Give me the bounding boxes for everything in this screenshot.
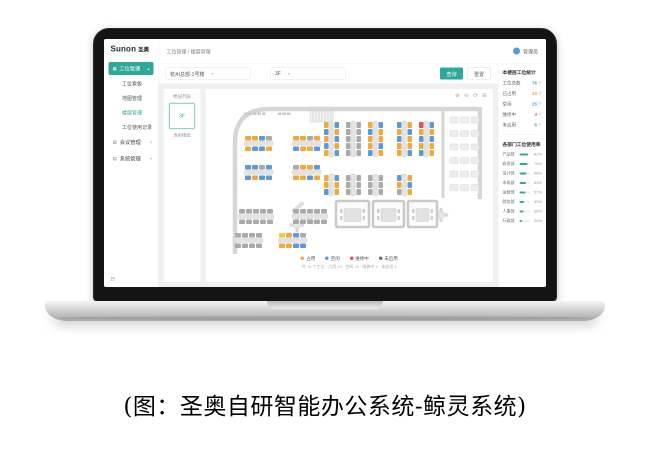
desk (292, 141, 321, 146)
seat[interactable] (300, 136, 306, 141)
seat[interactable] (368, 136, 373, 142)
stat-value: 76 (532, 81, 537, 86)
seat[interactable] (419, 143, 424, 149)
locker (460, 185, 468, 191)
building-select-value: 杭州总部·1号楼 (170, 70, 204, 78)
zoom-in-icon[interactable]: ⊕ (455, 92, 460, 99)
seat[interactable] (324, 129, 329, 135)
desk (373, 121, 378, 157)
seat[interactable] (307, 136, 313, 141)
main-area: 工位管理 / 楼层管理 管理员 杭州总部·1号楼 (159, 39, 547, 287)
usage-row: 人事部38% (503, 209, 543, 215)
floor-summary-note: 共 76 个工位 · 占用 43 · 空闲 25 · 维修中 3 · 未启用 5 (302, 264, 397, 270)
seat[interactable] (378, 129, 383, 135)
seat[interactable] (407, 129, 412, 135)
seat[interactable] (286, 233, 292, 238)
locker (450, 185, 458, 191)
usage-pct: 26% (532, 219, 542, 224)
seat[interactable] (429, 136, 434, 142)
stat-row: 工位总数76个 (503, 80, 543, 87)
desk (373, 174, 378, 196)
floor-select[interactable]: 3F ▾ (271, 68, 346, 80)
seat[interactable] (334, 175, 339, 181)
seat[interactable] (321, 220, 327, 225)
menu-icon: ▤ (113, 156, 117, 162)
seat[interactable] (279, 233, 285, 238)
seat[interactable] (378, 182, 383, 188)
usage-bar-fill (520, 201, 525, 203)
usage-bar-fill (520, 182, 527, 184)
seat[interactable] (266, 147, 272, 152)
stat-label: 维修中 (503, 111, 517, 118)
topbar: 工位管理 / 楼层管理 管理员 (159, 39, 547, 64)
seat[interactable] (300, 165, 306, 170)
seat[interactable] (252, 165, 258, 170)
seat[interactable] (346, 122, 351, 128)
usage-label: 人事部 (503, 209, 518, 215)
laptop-notch (267, 301, 383, 309)
usage-label: 产品部 (503, 152, 518, 158)
seat[interactable] (235, 233, 241, 238)
locker (450, 117, 458, 123)
seat[interactable] (407, 175, 412, 181)
desk (424, 121, 429, 157)
legend-item: 未启用 (379, 255, 398, 262)
stat-label: 未启用 (503, 122, 517, 129)
usage-rows: 产品部82%研发部76%设计部68%市场部63%运营部57%财务部45%人事部3… (503, 152, 543, 224)
username: 管理员 (523, 47, 538, 55)
seat[interactable] (252, 136, 258, 141)
seat[interactable] (368, 143, 373, 149)
seat[interactable] (246, 220, 252, 225)
usage-bar (520, 220, 531, 222)
seat[interactable] (300, 244, 306, 249)
floorplan-canvas: ⊕⊖⟳⊞ 占用空闲维修中未启用 共 76 个工位 · 占用 43 · 空闲 25… (206, 89, 494, 282)
seat[interactable] (259, 147, 265, 152)
desk (292, 214, 328, 219)
seat[interactable] (407, 136, 412, 142)
usage-bar (520, 191, 531, 193)
seat[interactable] (259, 176, 265, 181)
seat[interactable] (307, 165, 313, 170)
usage-pct: 76% (532, 162, 542, 167)
seat[interactable] (356, 182, 361, 188)
seat[interactable] (368, 189, 373, 195)
legend-label: 占用 (306, 255, 315, 262)
usage-bar-fill (520, 220, 523, 222)
seat[interactable] (378, 136, 383, 142)
stairs (310, 111, 333, 122)
seat[interactable] (334, 189, 339, 195)
legend-dot (325, 257, 329, 261)
sidebar-subitem[interactable]: 工位看板 (104, 76, 158, 91)
locker (471, 185, 479, 191)
locker (460, 144, 468, 150)
bottom-row: 杭州总部·1号楼 ▾ 3F ▾ 查询 重置 (159, 64, 547, 288)
seat[interactable] (242, 233, 248, 238)
desk (238, 214, 274, 219)
stat-unit: 个 (538, 81, 542, 87)
seat[interactable] (293, 233, 299, 238)
refresh-icon[interactable]: ⟳ (473, 92, 478, 99)
usage-label: 行政部 (503, 218, 518, 224)
content-row: 楼层列表 3F 当前楼层 ⊕⊖⟳⊞ 占用空闲维修中未启用 (159, 84, 499, 287)
usage-row: 研发部76% (503, 161, 543, 167)
seat[interactable] (397, 143, 402, 149)
stat-row: 未启用5个 (503, 122, 543, 129)
seat[interactable] (429, 143, 434, 149)
seat[interactable] (307, 147, 313, 152)
stat-unit: 个 (538, 91, 542, 97)
sidebar-item-label: 系统管理 (120, 155, 141, 163)
seat[interactable] (346, 143, 351, 149)
stat-value: 5 (534, 123, 537, 128)
menu-icon: ▤ (113, 140, 117, 146)
seat[interactable] (266, 176, 272, 181)
seat[interactable] (356, 122, 361, 128)
seat[interactable] (419, 122, 424, 128)
seat[interactable] (378, 175, 383, 181)
seat[interactable] (314, 147, 320, 152)
seat[interactable] (324, 150, 329, 156)
seat[interactable] (324, 189, 329, 195)
stat-unit: 个 (538, 112, 542, 118)
usage-row: 市场部63% (503, 180, 543, 186)
locker (450, 158, 458, 164)
chevron-down-icon: ▾ (150, 157, 152, 162)
seat[interactable] (260, 209, 266, 214)
usage-pct: 63% (532, 181, 542, 186)
seat[interactable] (300, 176, 306, 181)
seat[interactable] (307, 176, 313, 181)
seat[interactable] (324, 143, 329, 149)
desk (292, 170, 321, 175)
seat[interactable] (260, 220, 266, 225)
floor-thumbnail-caption: 当前楼层 (173, 132, 190, 138)
stat-row: 已占用43个 (503, 90, 543, 97)
locker (471, 158, 479, 164)
seat[interactable] (407, 122, 412, 128)
divider (503, 134, 543, 135)
reset-button[interactable]: 重置 (467, 68, 491, 80)
breadcrumb[interactable]: 工位管理 / 楼层管理 (167, 47, 211, 55)
stat-value: 3 (534, 112, 537, 117)
seat[interactable] (249, 244, 255, 249)
seat[interactable] (256, 233, 262, 238)
seat[interactable] (307, 220, 313, 225)
sidebar-subitem[interactable]: 地图管理 (104, 91, 158, 106)
seat[interactable] (368, 175, 373, 181)
seat[interactable] (334, 182, 339, 188)
seat[interactable] (266, 165, 272, 170)
sidebar-item-parent[interactable]: ▤会议管理▾ (104, 134, 158, 151)
usage-bar-fill (520, 163, 528, 165)
seat[interactable] (314, 165, 320, 170)
seat[interactable] (293, 209, 299, 214)
seat[interactable] (407, 143, 412, 149)
seat[interactable] (324, 122, 329, 128)
usage-bar-fill (520, 153, 529, 155)
sidebar-collapse-button[interactable]: ⊟ (111, 276, 116, 283)
seat[interactable] (356, 143, 361, 149)
locker (450, 131, 458, 137)
chevron-down-icon: ▾ (288, 71, 290, 76)
seat[interactable] (253, 209, 259, 214)
seat[interactable] (378, 150, 383, 156)
legend-item: 占用 (301, 255, 316, 262)
seat[interactable] (397, 175, 402, 181)
canvas-toolbar: ⊕⊖⟳⊞ (455, 92, 487, 99)
laptop-screen: Sunon 圣奥 ▦ 工位管理 ▴ 工位看板地图管理楼层管理工位使用记录 ▤会议… (104, 39, 546, 287)
seat[interactable] (346, 150, 351, 156)
locker (450, 144, 458, 150)
stat-unit: 个 (538, 102, 542, 108)
filter-actions: 查询 重置 (440, 68, 491, 80)
sidebar: Sunon 圣奥 ▦ 工位管理 ▴ 工位看板地图管理楼层管理工位使用记录 ▤会议… (104, 39, 159, 287)
seat[interactable] (300, 233, 306, 238)
seat[interactable] (307, 209, 313, 214)
sidebar-item-label: 工位管理 (119, 65, 140, 73)
seat[interactable] (356, 129, 361, 135)
desk (329, 174, 334, 196)
locker (460, 158, 468, 164)
brand-text: Sunon (111, 45, 137, 54)
seat[interactable] (267, 220, 273, 225)
seat[interactable] (300, 209, 306, 214)
usage-bar (520, 210, 531, 212)
seat[interactable] (245, 176, 251, 181)
seat[interactable] (245, 136, 251, 141)
locker (460, 171, 468, 177)
desk (278, 238, 307, 243)
left-column: 杭州总部·1号楼 ▾ 3F ▾ 查询 重置 (159, 64, 499, 288)
usage-bar (520, 153, 531, 155)
seat[interactable] (346, 129, 351, 135)
seat[interactable] (346, 182, 351, 188)
seat[interactable] (256, 244, 262, 249)
seat[interactable] (397, 129, 402, 135)
legend-item: 空闲 (325, 255, 340, 262)
seat[interactable] (252, 147, 258, 152)
seat[interactable] (407, 189, 412, 195)
seat[interactable] (356, 175, 361, 181)
seat[interactable] (368, 129, 373, 135)
seat[interactable] (378, 189, 383, 195)
seat[interactable] (245, 147, 251, 152)
seat-legend: 占用空闲维修中未启用 (301, 255, 398, 262)
usage-pct: 82% (532, 152, 542, 157)
seat[interactable] (314, 136, 320, 141)
sidebar-subitem[interactable]: 工位使用记录 (104, 120, 158, 135)
fullscreen-icon[interactable]: ⊞ (482, 92, 487, 99)
seat[interactable] (334, 150, 339, 156)
seat[interactable] (397, 122, 402, 128)
seat[interactable] (334, 129, 339, 135)
seat[interactable] (324, 182, 329, 188)
desk (244, 141, 273, 146)
seat[interactable] (314, 209, 320, 214)
seat[interactable] (235, 244, 241, 249)
locker (471, 171, 479, 177)
seat[interactable] (293, 244, 299, 249)
seat[interactable] (249, 233, 255, 238)
legend-label: 维修中 (355, 255, 369, 262)
sidebar-parents: ▤会议管理▾▤系统管理▾ (104, 134, 158, 167)
sidebar-item-label: 会议管理 (120, 139, 141, 147)
seat[interactable] (324, 136, 329, 142)
seat[interactable] (346, 175, 351, 181)
seat[interactable] (419, 136, 424, 142)
seat[interactable] (239, 220, 245, 225)
seat[interactable] (266, 136, 272, 141)
usage-title: 各部门工位使用率 (503, 141, 543, 148)
chevron-down-icon: ▾ (150, 140, 152, 145)
seat[interactable] (397, 136, 402, 142)
seat[interactable] (397, 150, 402, 156)
desk (234, 238, 263, 243)
app-logo: Sunon 圣奥 (104, 39, 158, 60)
seat[interactable] (242, 244, 248, 249)
usage-bar (520, 201, 531, 203)
stat-value: 43 (532, 91, 537, 96)
seat[interactable] (397, 189, 402, 195)
seat[interactable] (378, 122, 383, 128)
legend-label: 空闲 (331, 255, 340, 262)
locker (450, 171, 458, 177)
seat[interactable] (429, 129, 434, 135)
seat[interactable] (293, 147, 299, 152)
user-menu[interactable]: 管理员 (513, 47, 538, 55)
desk (244, 170, 273, 175)
seat[interactable] (334, 143, 339, 149)
seat[interactable] (429, 150, 434, 156)
seat[interactable] (300, 220, 306, 225)
laptop-base (45, 301, 605, 321)
app-window: Sunon 圣奥 ▦ 工位管理 ▴ 工位看板地图管理楼层管理工位使用记录 ▤会议… (104, 39, 546, 287)
seat[interactable] (368, 150, 373, 156)
figure-caption: (图：圣奥自研智能办公系统-鲸灵系统) (0, 387, 650, 421)
usage-bar-fill (520, 210, 524, 212)
search-button[interactable]: 查询 (440, 68, 463, 80)
seat[interactable] (419, 150, 424, 156)
avatar (513, 48, 520, 55)
seat[interactable] (356, 150, 361, 156)
sidebar-subitem[interactable]: 楼层管理 (104, 105, 158, 120)
filter-bar: 杭州总部·1号楼 ▾ 3F ▾ 查询 重置 (159, 64, 499, 85)
usage-row: 运营部57% (503, 190, 543, 196)
desk (329, 121, 334, 157)
stat-row: 空闲25个 (503, 101, 543, 108)
floor-list-title: 楼层列表 (173, 93, 191, 100)
grid-icon: ▦ (113, 66, 117, 72)
seat[interactable] (378, 143, 383, 149)
seat[interactable] (397, 182, 402, 188)
seat[interactable] (293, 176, 299, 181)
seat[interactable] (429, 122, 434, 128)
seat[interactable] (252, 176, 258, 181)
seat[interactable] (253, 220, 259, 225)
seat[interactable] (419, 129, 424, 135)
stats-panel: 本楼层工位统计 工位总数76个已占用43个空闲25个维修中3个未启用5个 各部门… (498, 64, 546, 288)
seat[interactable] (239, 209, 245, 214)
zoom-out-icon[interactable]: ⊖ (464, 92, 469, 99)
seat[interactable] (368, 122, 373, 128)
seat[interactable] (356, 189, 361, 195)
legend-dot (350, 257, 354, 261)
seat[interactable] (300, 147, 306, 152)
seat[interactable] (246, 209, 252, 214)
usage-bar (520, 172, 531, 174)
floor-list-panel: 楼层列表 3F 当前楼层 (164, 89, 201, 282)
seat[interactable] (321, 209, 327, 214)
sidebar-item-workstation[interactable]: ▦ 工位管理 ▴ (109, 62, 154, 75)
seat[interactable] (267, 209, 273, 214)
building-select[interactable]: 杭州总部·1号楼 ▾ (166, 68, 251, 80)
usage-pct: 45% (532, 200, 542, 205)
stat-label: 工位总数 (503, 80, 521, 87)
brand-cn-text: 圣奥 (138, 46, 149, 54)
locker (471, 131, 479, 137)
chevron-down-icon: ▾ (211, 71, 213, 76)
seat[interactable] (293, 165, 299, 170)
locker (471, 117, 479, 123)
floor-select-value: 3F (275, 71, 281, 77)
seat[interactable] (407, 150, 412, 156)
desk (351, 174, 356, 196)
legend-item: 维修中 (350, 255, 369, 262)
seat[interactable] (293, 220, 299, 225)
figure-page: Sunon 圣奥 ▦ 工位管理 ▴ 工位看板地图管理楼层管理工位使用记录 ▤会议… (0, 0, 650, 456)
seat[interactable] (334, 136, 339, 142)
stats-rows: 工位总数76个已占用43个空闲25个维修中3个未启用5个 (503, 80, 543, 129)
seat[interactable] (259, 165, 265, 170)
stat-label: 空闲 (503, 101, 512, 108)
seat[interactable] (286, 244, 292, 249)
seat[interactable] (259, 136, 265, 141)
seat[interactable] (314, 220, 320, 225)
seat[interactable] (368, 182, 373, 188)
usage-pct: 57% (532, 190, 542, 195)
usage-bar-fill (520, 191, 526, 193)
desk (402, 174, 407, 196)
locker (460, 117, 468, 123)
floor-thumbnail[interactable]: 3F (169, 103, 195, 129)
stat-label: 已占用 (503, 90, 517, 97)
sidebar-subitems: 工位看板地图管理楼层管理工位使用记录 (104, 76, 158, 134)
usage-bar-fill (520, 172, 527, 174)
seat[interactable] (245, 165, 251, 170)
legend-dot (301, 257, 305, 261)
seat[interactable] (293, 136, 299, 141)
seat[interactable] (346, 136, 351, 142)
stats-title: 本楼层工位统计 (503, 69, 543, 76)
usage-label: 运营部 (503, 190, 518, 196)
seat[interactable] (334, 122, 339, 128)
usage-label: 财务部 (503, 199, 518, 205)
usage-row: 财务部45% (503, 199, 543, 205)
locker (471, 144, 479, 150)
legend-dot (379, 257, 383, 261)
seat[interactable] (324, 175, 329, 181)
seat[interactable] (346, 189, 351, 195)
seat[interactable] (407, 182, 412, 188)
stat-row: 维修中3个 (503, 111, 543, 118)
locker (460, 131, 468, 137)
seat[interactable] (314, 176, 320, 181)
seat[interactable] (356, 136, 361, 142)
sidebar-item-parent[interactable]: ▤系统管理▾ (104, 151, 158, 168)
seat[interactable] (279, 244, 285, 249)
